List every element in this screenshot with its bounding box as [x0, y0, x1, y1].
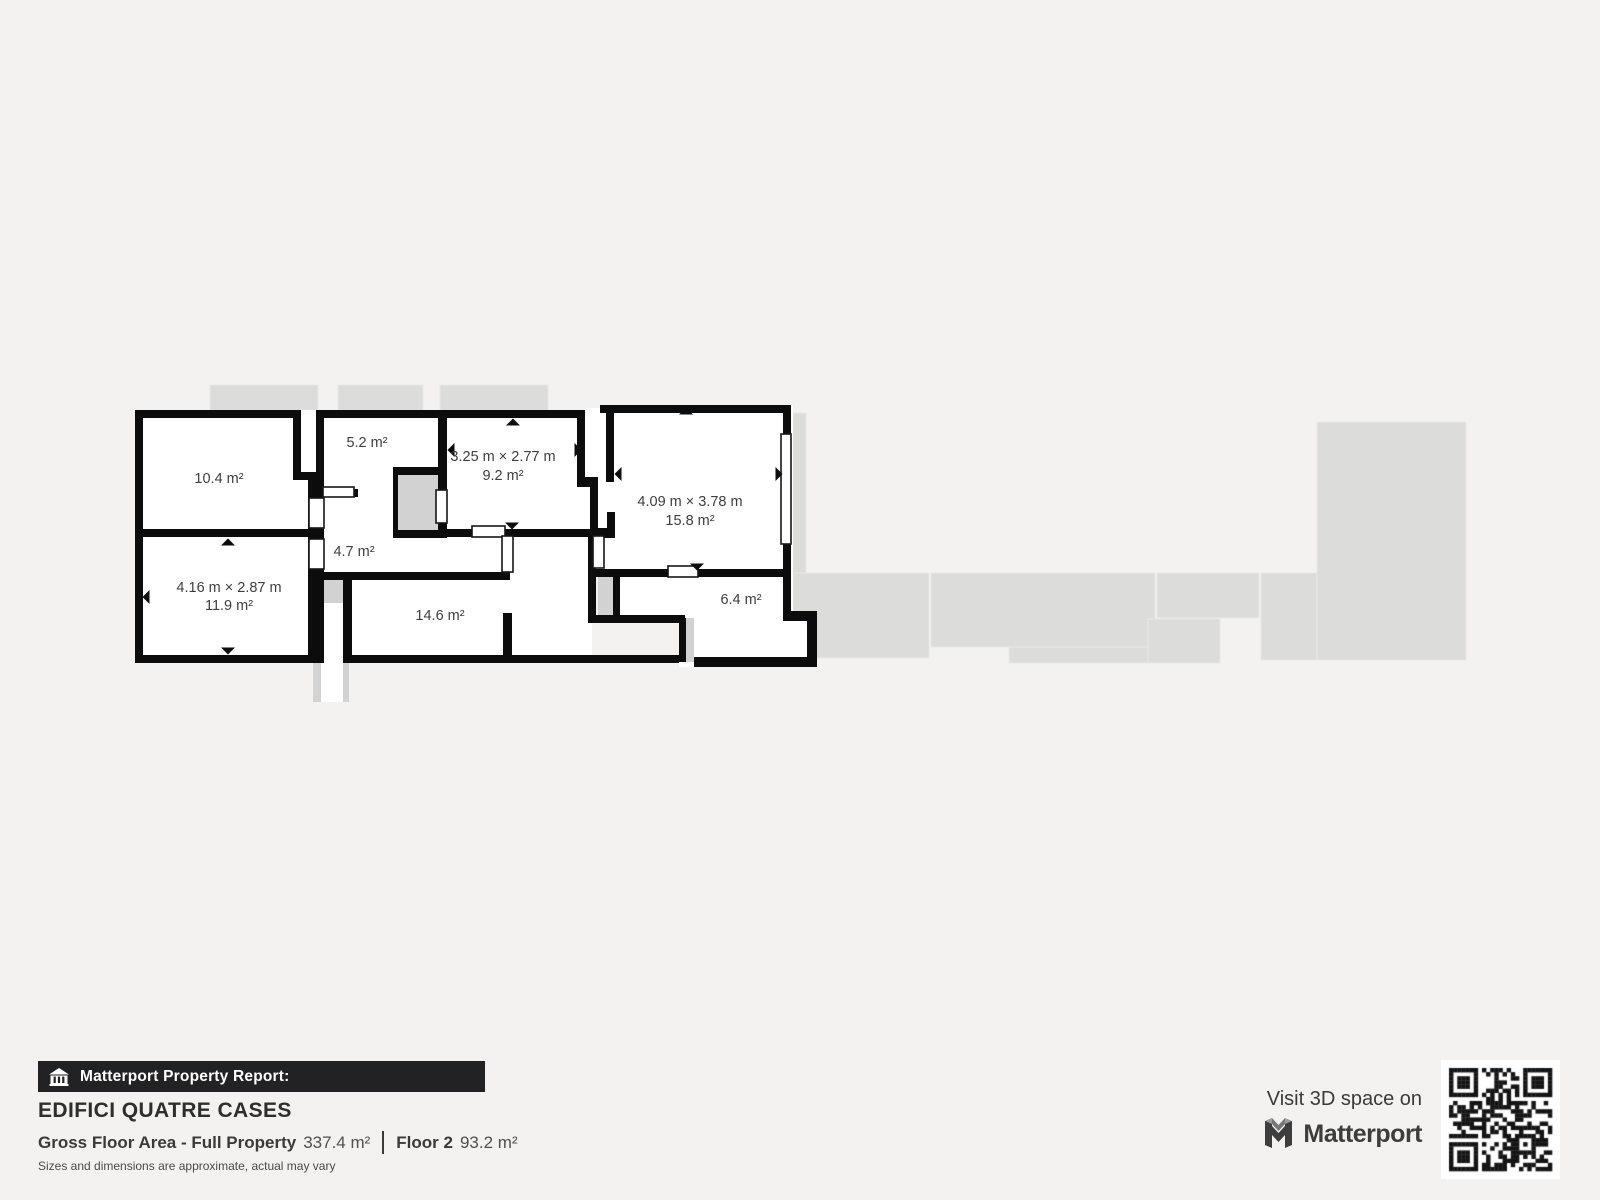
- room-label-6-4: 6.4 m²: [720, 592, 761, 608]
- property-name: EDIFICI QUATRE CASES: [38, 1099, 292, 1123]
- room-label-9-2: 9.2 m²: [482, 468, 523, 484]
- home-building-icon: [49, 1068, 69, 1086]
- banner-label: Matterport Property Report:: [80, 1068, 290, 1086]
- room-dims-9-2: 3.25 m × 2.77 m: [450, 449, 555, 465]
- matterport-floorplan-page: 10.4 m² 5.2 m² 3.25 m × 2.77 m 9.2 m² 4.…: [0, 0, 1600, 1200]
- qr-code: [1441, 1060, 1560, 1179]
- gross-floor-area-label: Gross Floor Area - Full Property: [38, 1133, 296, 1153]
- room-label-10-4: 10.4 m²: [194, 471, 243, 487]
- metrics-divider: [382, 1131, 384, 1154]
- room-label-4-7: 4.7 m²: [333, 544, 374, 560]
- matterport-wordmark: Matterport: [1303, 1120, 1422, 1149]
- room-label-15-8: 15.8 m²: [665, 513, 714, 529]
- qr-code-canvas: [1441, 1060, 1560, 1179]
- floor-value: 93.2 m²: [460, 1133, 518, 1153]
- matterport-logo: Matterport: [1263, 1117, 1422, 1151]
- report-banner: Matterport Property Report:: [38, 1061, 485, 1092]
- floor-area-metrics: Gross Floor Area - Full Property 337.4 m…: [38, 1131, 518, 1154]
- visit-3d-text: Visit 3D space on: [1267, 1088, 1422, 1111]
- gross-floor-area-value: 337.4 m²: [303, 1133, 370, 1153]
- room-label-14-6: 14.6 m²: [415, 608, 464, 624]
- visit-3d-cta: Visit 3D space on Matterport: [1100, 1088, 1422, 1151]
- disclaimer-text: Sizes and dimensions are approximate, ac…: [38, 1159, 335, 1173]
- room-label-5-2: 5.2 m²: [346, 435, 387, 451]
- room-dims-15-8: 4.09 m × 3.78 m: [637, 494, 742, 510]
- floor-label: Floor 2: [396, 1133, 453, 1153]
- matterport-m-icon: [1263, 1117, 1294, 1151]
- room-dims-11-9: 4.16 m × 2.87 m: [176, 580, 281, 596]
- floor-plan: 10.4 m² 5.2 m² 3.25 m × 2.77 m 9.2 m² 4.…: [0, 0, 1600, 1200]
- room-label-11-9: 11.9 m²: [205, 598, 253, 614]
